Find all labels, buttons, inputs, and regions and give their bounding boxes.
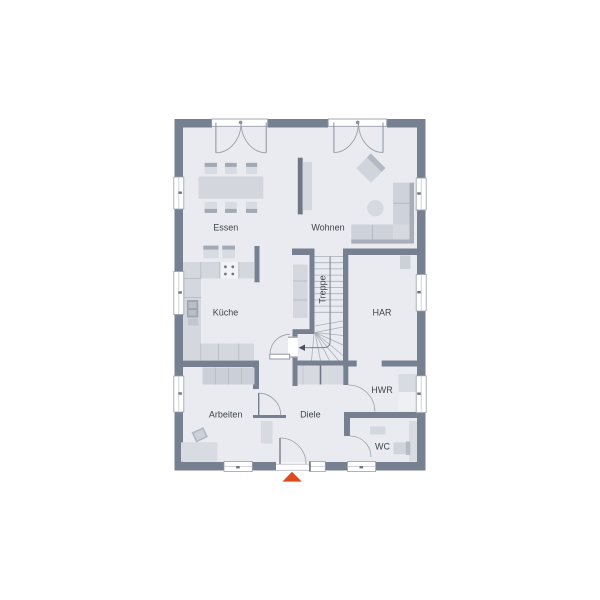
svg-text:Diele: Diele [300,410,321,420]
svg-text:Essen: Essen [213,223,238,233]
svg-text:Küche: Küche [213,308,239,318]
svg-text:HWR: HWR [371,385,393,395]
svg-text:Arbeiten: Arbeiten [209,410,243,420]
svg-text:Wohnen: Wohnen [311,223,344,233]
svg-text:Treppe: Treppe [317,275,327,303]
svg-text:HAR: HAR [372,308,392,318]
svg-text:WC: WC [375,442,390,452]
